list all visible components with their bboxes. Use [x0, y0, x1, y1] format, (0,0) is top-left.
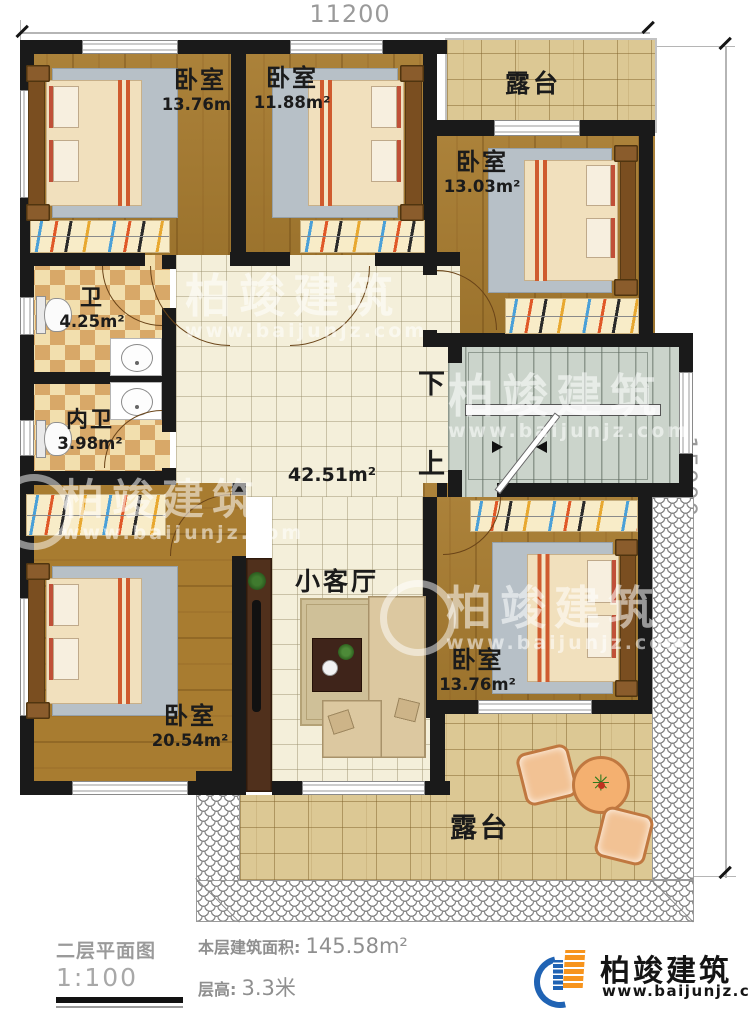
wall	[437, 120, 494, 136]
wall	[423, 700, 478, 714]
room-name: 卫	[56, 286, 128, 312]
room-label: 卧室 20.54m²	[145, 702, 235, 751]
bed-pillow	[49, 86, 79, 128]
dimension-ext-line	[694, 876, 736, 877]
room-area: 13.76m²	[150, 95, 250, 115]
tv	[252, 600, 261, 712]
floor-plan: 11200 15000	[0, 0, 750, 1009]
room-label: 卧室 11.88m²	[242, 64, 342, 113]
room-name: 卧室	[430, 646, 525, 675]
bed-headboard	[28, 574, 45, 709]
wall	[639, 136, 653, 333]
wall	[437, 333, 693, 347]
terrace-bottom-label: 露台	[450, 806, 510, 845]
stair-direction-arrow	[492, 441, 503, 453]
room-area: 13.76m²	[430, 675, 525, 695]
wall	[430, 714, 445, 795]
room-area: 4.25m²	[56, 312, 128, 332]
roof-tile-band	[652, 497, 694, 880]
bed-pillow	[587, 560, 615, 603]
room-area: 3.98m²	[52, 434, 128, 454]
dimension-right-line	[725, 47, 727, 878]
room-label: 卧室 13.76m²	[430, 646, 525, 695]
wall	[580, 120, 655, 136]
brand-logo-icon	[536, 948, 594, 1002]
brand-logo-block: 柏竣建筑 www.baijunjz.com	[536, 948, 736, 1004]
wall	[375, 252, 460, 266]
window	[679, 372, 693, 454]
logo-building-blue	[553, 960, 563, 990]
bed-pillow	[49, 638, 79, 680]
stair-direction-arrow	[536, 441, 547, 453]
stair-up-label: 上	[418, 442, 448, 481]
floor-height-note: 层高: 3.3米	[198, 972, 296, 1002]
room-area: 42.51m²	[286, 464, 378, 487]
wardrobe	[505, 298, 639, 334]
wall	[20, 781, 72, 795]
plan-title: 二层平面图	[56, 940, 156, 962]
bed-pillow	[586, 165, 615, 206]
bed-headboard	[620, 155, 636, 286]
terrace-bottom-floor	[240, 795, 430, 880]
wardrobe	[30, 220, 170, 253]
bed-pillow	[372, 140, 402, 182]
logo-building-orange	[563, 950, 586, 988]
wall	[448, 470, 462, 497]
wall	[437, 483, 447, 497]
wall	[20, 471, 176, 485]
window	[20, 297, 34, 335]
wall	[497, 483, 693, 497]
floor-height-label: 层高:	[198, 980, 236, 999]
title-underline-thin	[56, 1006, 183, 1008]
room-name: 卧室	[145, 702, 235, 731]
wall	[423, 330, 437, 347]
wall	[20, 252, 145, 266]
bed	[28, 566, 178, 716]
room-label: 内卫 3.98m²	[52, 408, 128, 454]
room-name: 内卫	[52, 408, 128, 434]
sink	[110, 338, 162, 376]
room-area: 11.88m²	[242, 93, 342, 113]
window	[72, 781, 188, 795]
bed-pillow	[587, 615, 615, 658]
roof-tile-band	[196, 880, 694, 922]
dimension-top-label: 11200	[295, 0, 405, 28]
plan-scale: 1:100	[56, 963, 138, 992]
room-area: 13.03m²	[432, 177, 532, 197]
bed-runner	[532, 554, 555, 682]
sink-basin	[121, 344, 153, 372]
wall	[232, 483, 246, 495]
wall	[196, 771, 244, 793]
wall	[592, 700, 652, 714]
bed-runner	[112, 578, 136, 704]
bed-pillow	[586, 218, 615, 259]
floor-area-note: 本层建筑面积: 145.58m²	[198, 934, 408, 958]
plate	[322, 660, 338, 676]
wall	[638, 497, 652, 713]
room-name: 卧室	[432, 148, 532, 177]
wardrobe	[26, 494, 166, 536]
bed-runner	[112, 80, 136, 206]
terrace-table: ✳	[572, 756, 630, 814]
bed-headboard	[620, 550, 636, 687]
window	[20, 420, 34, 456]
wall	[383, 40, 447, 54]
terrace-top-label: 露台	[505, 64, 561, 100]
wall	[232, 556, 246, 795]
wardrobe	[300, 220, 425, 253]
table-plant	[338, 644, 354, 660]
hall-area-label: 42.51m²	[286, 464, 378, 487]
room-label: 卧室 13.76m²	[150, 66, 250, 115]
table-plant-flower	[598, 782, 605, 789]
wall	[448, 347, 462, 363]
window	[290, 40, 383, 54]
bed-pillow	[49, 584, 79, 626]
room-label: 卫 4.25m²	[56, 286, 128, 332]
room-name: 卧室	[150, 66, 250, 95]
plant	[248, 572, 266, 590]
bed-runner	[529, 160, 553, 282]
room-label: 卧室 13.03m²	[432, 148, 532, 197]
floor-height-value: 3.3米	[242, 976, 296, 1000]
wall	[272, 781, 302, 795]
bed-pillow	[49, 140, 79, 182]
stair-handrail	[465, 404, 661, 416]
window	[478, 700, 592, 714]
wall	[162, 308, 176, 432]
window	[302, 781, 425, 795]
room-name: 卧室	[242, 64, 342, 93]
bed-pillow	[372, 86, 402, 128]
floor-area-label: 本层建筑面积:	[198, 938, 300, 957]
room-area: 20.54m²	[145, 731, 235, 751]
stair-down-label: 下	[418, 362, 448, 401]
window	[82, 40, 178, 54]
title-underline-thick	[56, 997, 183, 1003]
floor-area-value: 145.58m²	[306, 934, 408, 958]
brand-url: www.baijunjz.com	[602, 982, 750, 1000]
wall	[679, 347, 693, 372]
dimension-top-line	[22, 32, 650, 34]
wall	[230, 252, 290, 266]
window	[494, 120, 580, 136]
bed-headboard	[406, 76, 423, 211]
bed-headboard	[28, 76, 45, 211]
living-room-label: 小客厅	[295, 562, 379, 598]
